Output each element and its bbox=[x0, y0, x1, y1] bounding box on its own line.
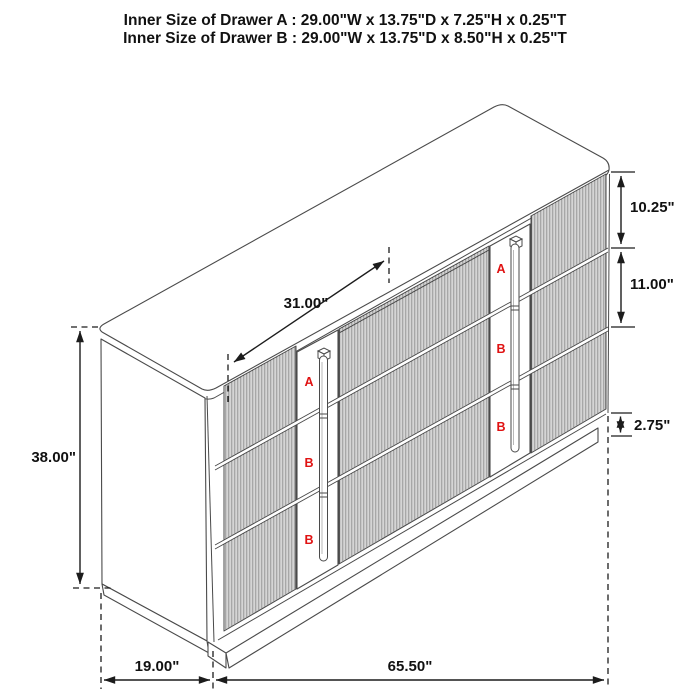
dim-label-38-00: 38.00" bbox=[31, 449, 76, 466]
title-line-drawer-b: Inner Size of Drawer B : 29.00"W x 13.75… bbox=[123, 30, 567, 47]
dim-label-65-50: 65.50" bbox=[388, 658, 433, 675]
dim-label-2-75: 2.75" bbox=[634, 417, 670, 434]
title-line-drawer-a: Inner Size of Drawer A : 29.00"W x 13.75… bbox=[124, 12, 567, 29]
left-door-fluted-panel bbox=[224, 346, 296, 631]
right-stile-label-b1: B bbox=[496, 342, 505, 356]
right-stile-label-b2: B bbox=[496, 420, 505, 434]
right-stile-label-a: A bbox=[496, 262, 505, 276]
left-stile-label-b2: B bbox=[304, 533, 313, 547]
dim-base-height: 2.75" bbox=[611, 413, 670, 436]
left-stile-label-a: A bbox=[304, 375, 313, 389]
dim-drawer-heights: 10.25" 11.00" bbox=[611, 172, 675, 327]
left-handle-stile bbox=[297, 330, 338, 589]
dim-label-10-25: 10.25" bbox=[630, 199, 675, 216]
furniture-dimension-diagram: Inner Size of Drawer A : 29.00"W x 13.75… bbox=[0, 0, 700, 700]
front-left-foot bbox=[208, 642, 226, 668]
right-door-fluted-panel bbox=[531, 174, 606, 453]
left-stile-label-b1: B bbox=[304, 456, 313, 470]
front-face-left-edge bbox=[207, 396, 214, 642]
diagram-canvas: Inner Size of Drawer A : 29.00"W x 13.75… bbox=[0, 0, 700, 700]
cabinet-drawing: A B B A B B bbox=[100, 105, 610, 668]
dim-label-11-00: 11.00" bbox=[630, 276, 674, 293]
title-block: Inner Size of Drawer A : 29.00"W x 13.75… bbox=[123, 12, 567, 47]
dim-label-31: 31.00" bbox=[284, 295, 329, 312]
front-face-right-edge bbox=[608, 174, 610, 413]
dim-label-19-00: 19.00" bbox=[135, 658, 180, 675]
